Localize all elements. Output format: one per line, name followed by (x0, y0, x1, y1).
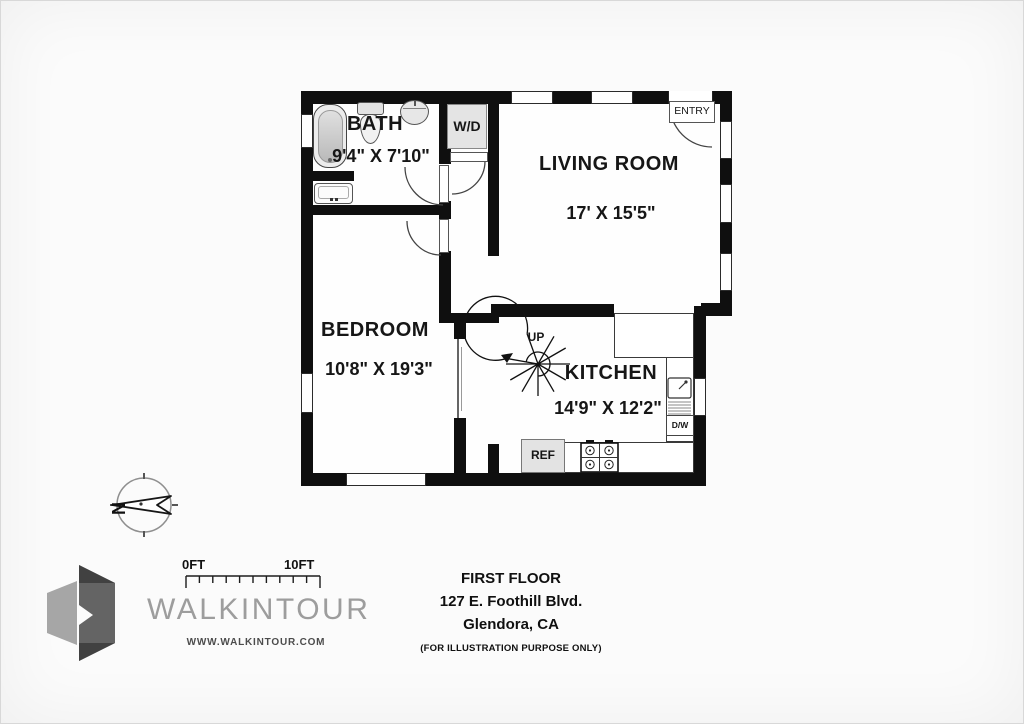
window-living-right-3 (720, 253, 732, 291)
brand-name: WALKINTOUR (147, 593, 365, 627)
compass-north-label: N (109, 502, 129, 515)
bath-name: BATH (315, 113, 435, 135)
kitchen-counter-top (614, 313, 694, 358)
stove-icon (580, 440, 620, 474)
window-bedroom-bottom (346, 473, 426, 486)
window-living-top-2 (591, 91, 633, 104)
wall-kitchen-topleft (439, 313, 499, 323)
disclaimer: (FOR ILLUSTRATION PURPOSE ONLY) (401, 643, 621, 655)
scale-start-label: 0FT (182, 557, 205, 572)
floorplan-page: ENTRY W/D REF (0, 0, 1024, 724)
living-room-dims: 17' X 15'5" (531, 204, 691, 224)
wd-door-leaf (450, 152, 488, 162)
refrigerator-icon: REF (521, 439, 565, 473)
wall-kitchen-top (491, 304, 614, 317)
entry-label: ENTRY (674, 106, 709, 118)
title-block: FIRST FLOOR 127 E. Foothill Blvd. Glendo… (401, 567, 621, 655)
bedroom-name: BEDROOM (305, 319, 445, 341)
wall-bedroom-right-lower (454, 418, 466, 473)
city-line: Glendora, CA (401, 613, 621, 636)
compass-icon: N (102, 467, 186, 547)
living-room-name: LIVING ROOM (529, 153, 689, 175)
bedroom-dims: 10'8" X 19'3" (299, 360, 459, 380)
scale-end-label: 10FT (284, 557, 314, 572)
bedroom-door-leaf (439, 219, 449, 253)
bath-dims: 9'4" X 7'10" (311, 147, 451, 167)
washer-dryer-icon: W/D (447, 104, 487, 149)
address-line: 127 E. Foothill Blvd. (401, 590, 621, 613)
window-living-top-1 (511, 91, 553, 104)
scale-ruler-icon (184, 574, 324, 592)
vanity-sink-icon (314, 183, 353, 204)
wall-bath-bottom (301, 171, 354, 181)
floor-title: FIRST FLOOR (401, 567, 621, 590)
ref-label: REF (531, 449, 555, 462)
wd-label: W/D (453, 119, 480, 134)
brand-website: WWW.WALKINTOUR.COM (147, 637, 365, 648)
window-bath-left (301, 114, 313, 148)
stairs-up-label: UP (519, 331, 553, 344)
window-living-right-2 (720, 184, 732, 223)
kitchen-dims: 14'9" X 12'2" (528, 399, 688, 419)
window-living-right-1 (720, 121, 732, 159)
dw-label: D/W (672, 421, 689, 430)
kitchen-name: KITCHEN (531, 362, 691, 384)
window-kitchen-right (694, 378, 706, 416)
entry-label-box: ENTRY (669, 101, 715, 123)
walkintour-logo-icon (43, 557, 123, 667)
wd-door-arc (448, 158, 490, 200)
wall-hall-living-lower (488, 444, 499, 473)
